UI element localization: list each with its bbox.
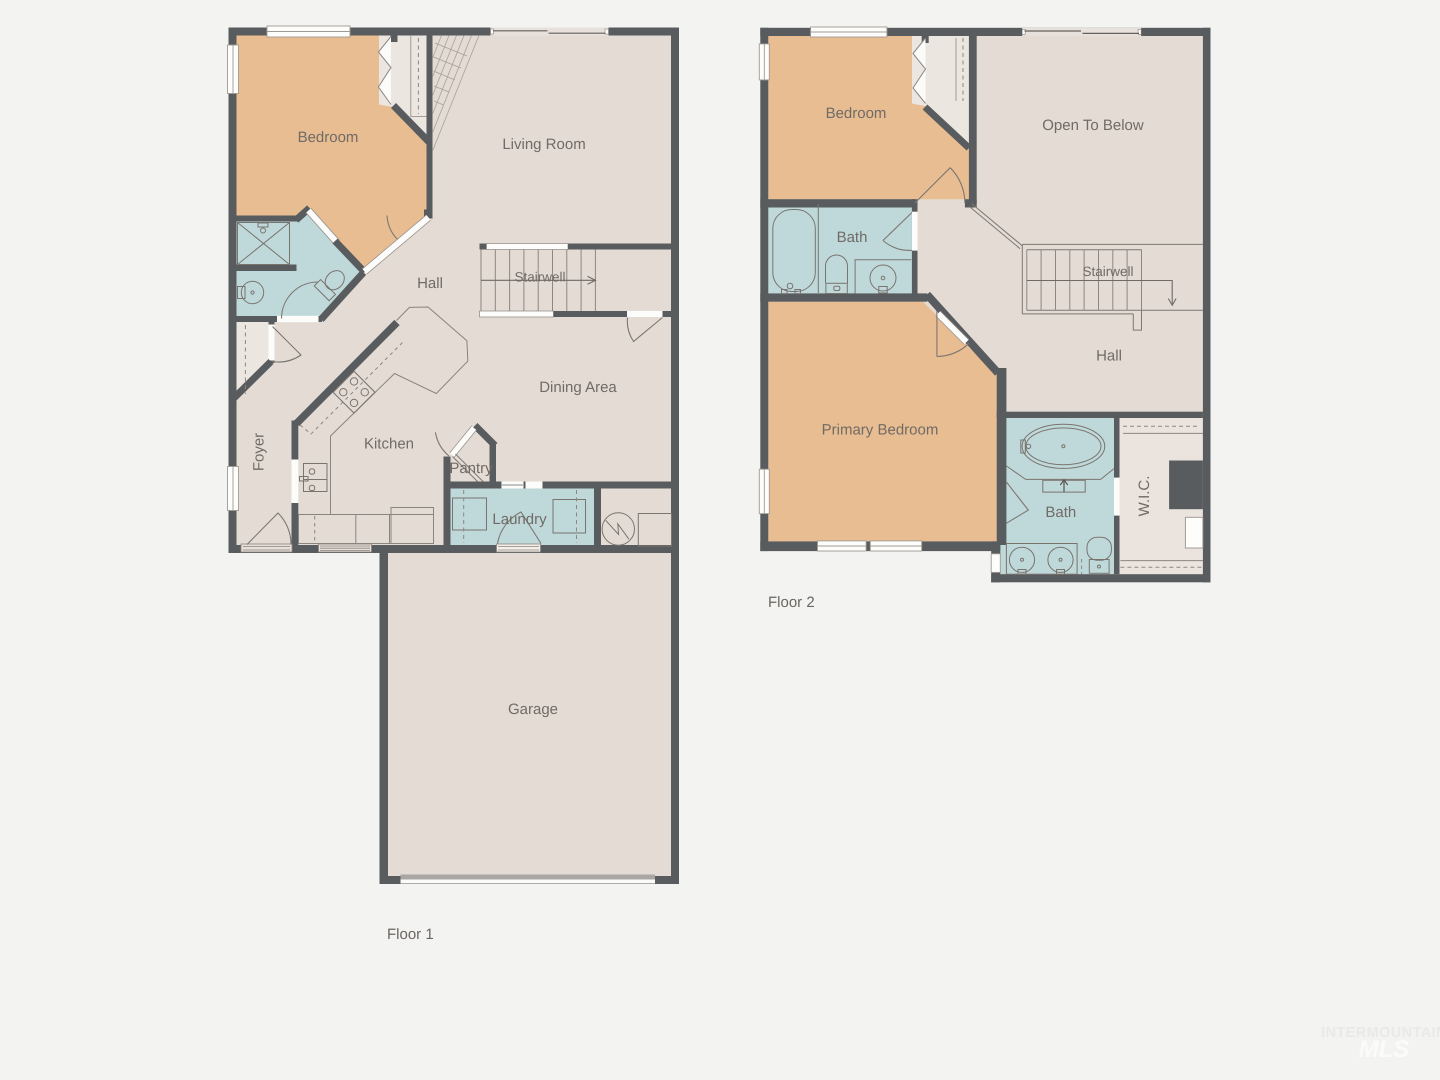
svg-text:Stairwell: Stairwell (1082, 264, 1133, 279)
svg-text:W.I.C.: W.I.C. (1136, 476, 1153, 517)
svg-text:Garage: Garage (508, 701, 558, 718)
svg-text:Stairwell: Stairwell (514, 270, 565, 285)
svg-text:Open To Below: Open To Below (1042, 117, 1144, 134)
svg-text:Bath: Bath (1045, 504, 1076, 521)
svg-text:Floor 1: Floor 1 (387, 926, 434, 943)
svg-text:Kitchen: Kitchen (364, 436, 414, 453)
svg-text:Living Room: Living Room (502, 136, 585, 153)
svg-text:Laundry: Laundry (492, 511, 547, 528)
svg-text:Dining Area: Dining Area (539, 379, 617, 396)
svg-text:Bedroom: Bedroom (298, 129, 359, 146)
svg-text:Hall: Hall (417, 275, 443, 292)
svg-text:Hall: Hall (1096, 348, 1122, 365)
svg-text:Pantry: Pantry (449, 460, 493, 477)
svg-text:Foyer: Foyer (251, 433, 268, 471)
svg-text:Bedroom: Bedroom (826, 105, 887, 122)
svg-text:Bath: Bath (837, 229, 868, 246)
svg-text:Floor 2: Floor 2 (768, 594, 815, 611)
svg-text:MLS: MLS (1359, 1036, 1410, 1063)
svg-text:Primary Bedroom: Primary Bedroom (822, 422, 939, 439)
